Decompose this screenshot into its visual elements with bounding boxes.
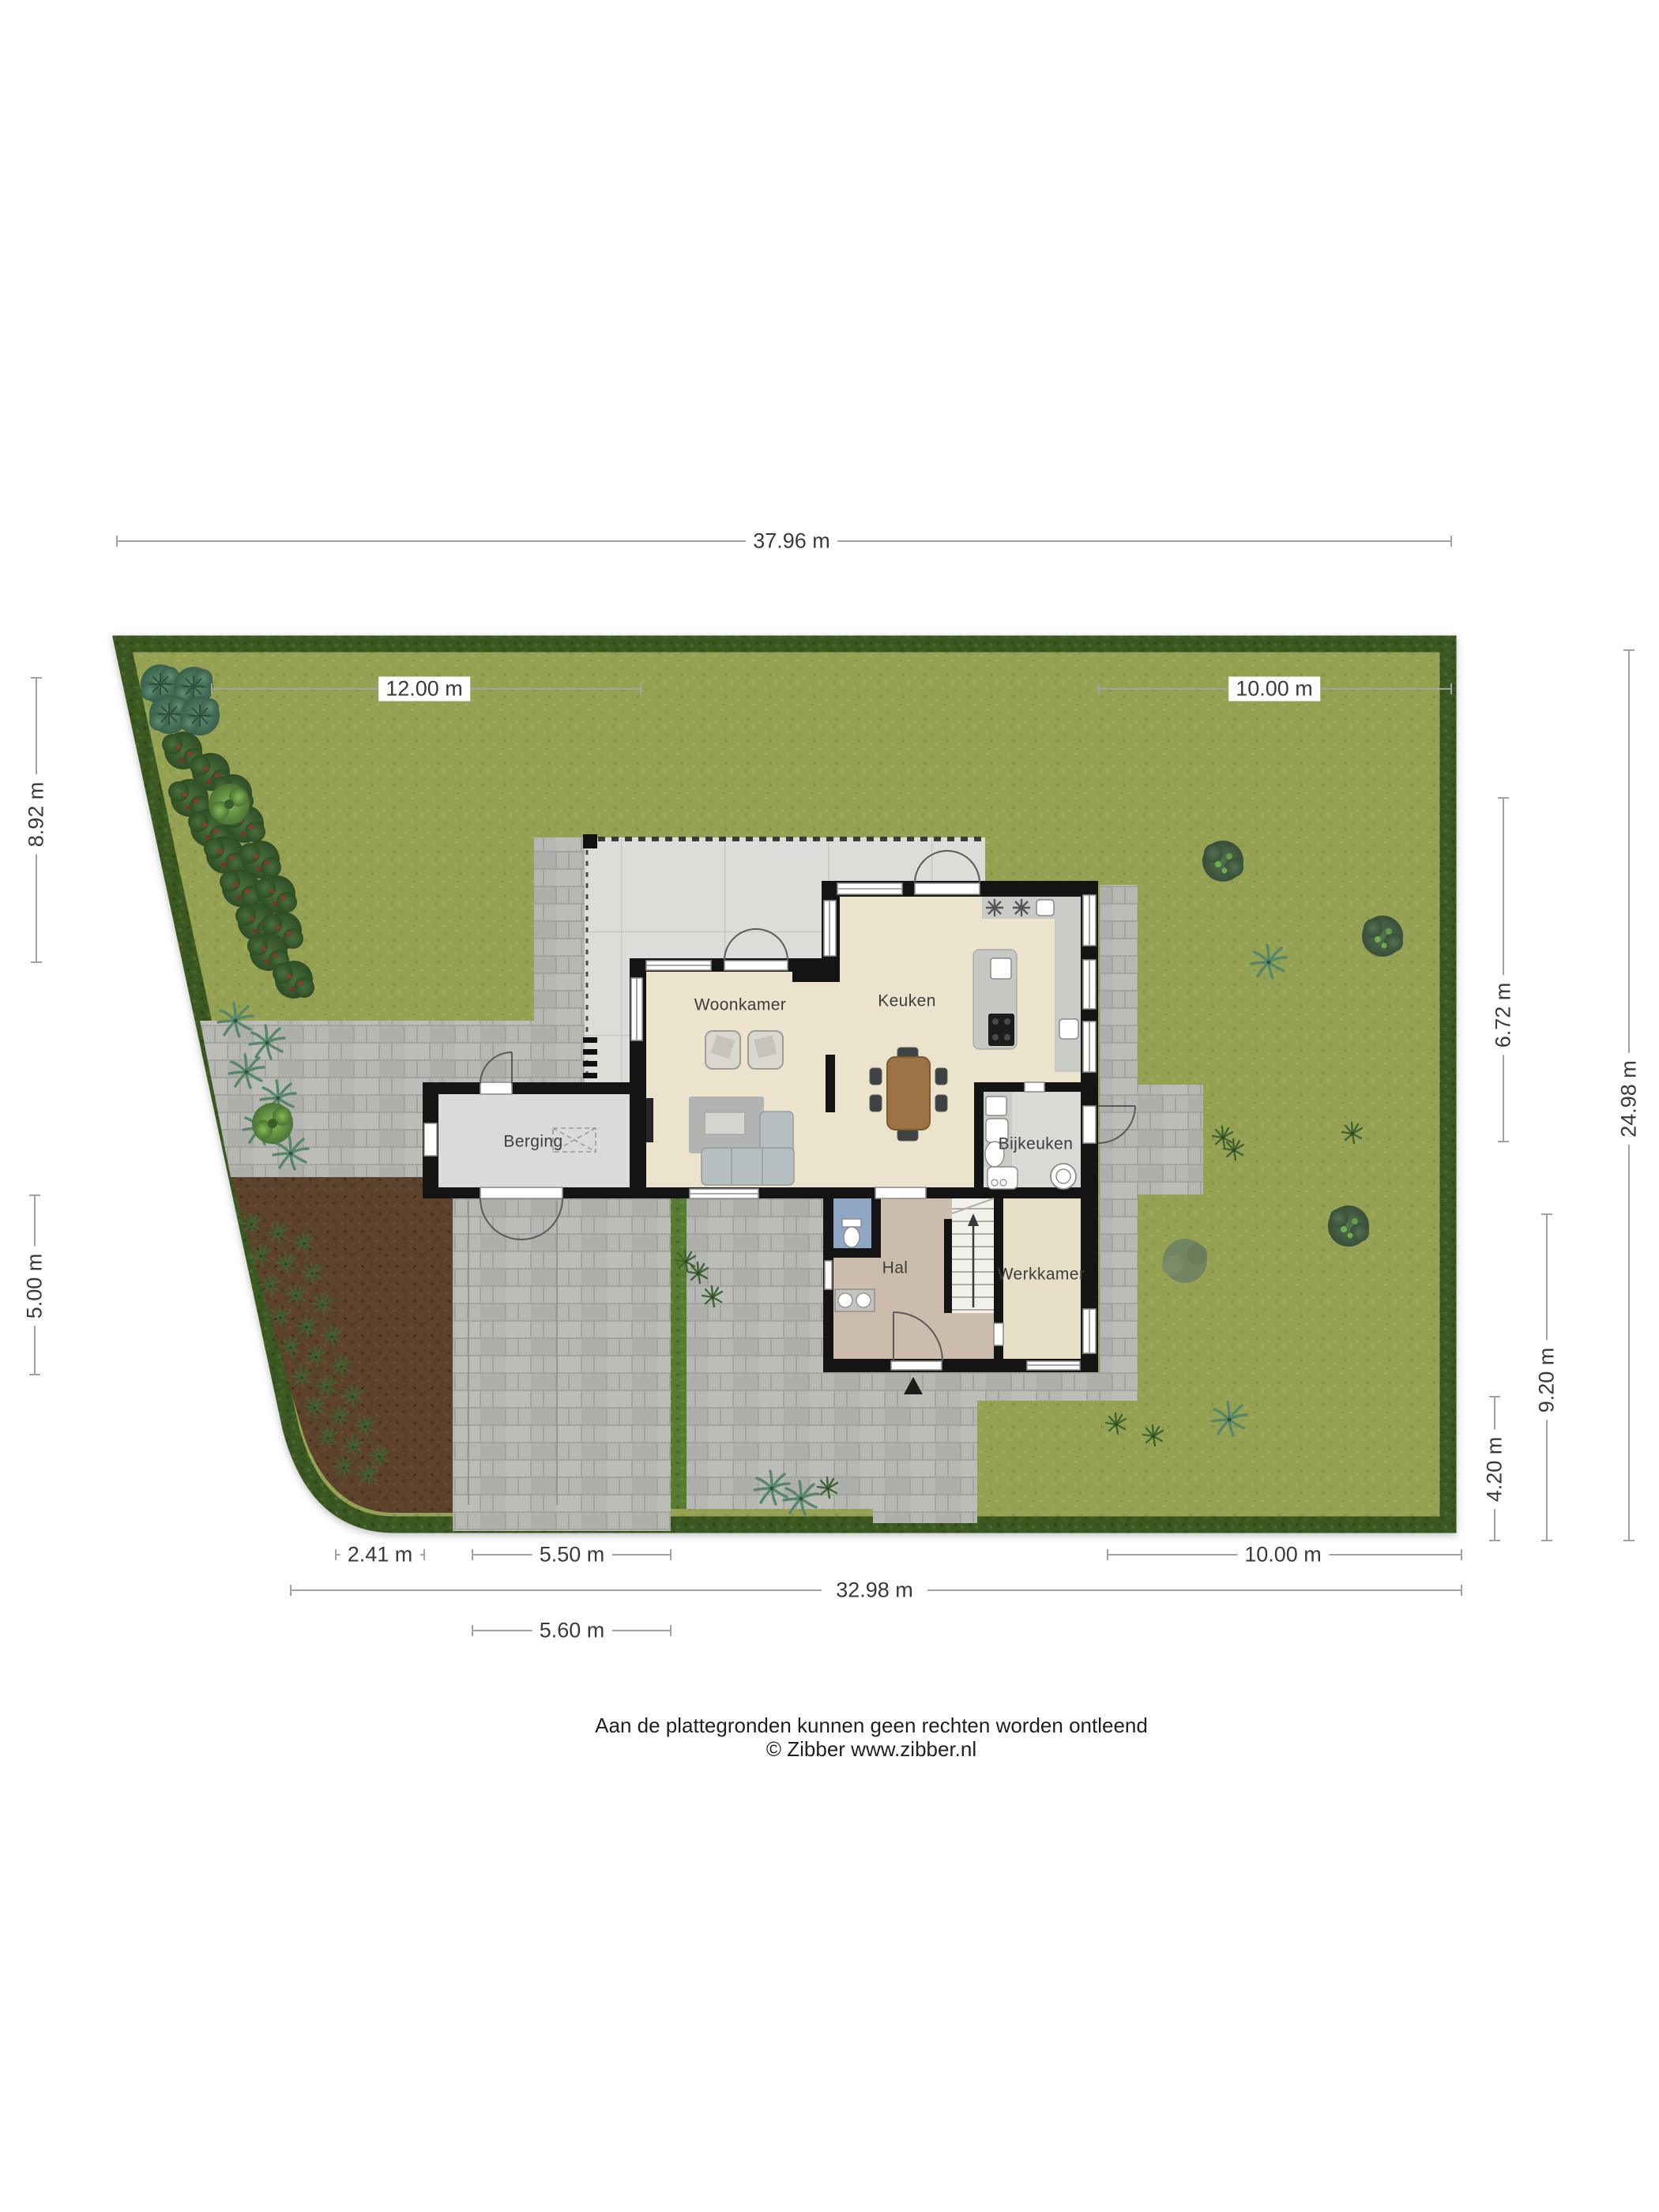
kitchen-island [973, 950, 1017, 1049]
footer-copyright: © Zibber www.zibber.nl [766, 1739, 976, 1759]
dim-bottom-3: 10.00 m [1237, 1543, 1329, 1567]
dim-bottom-2: 5.50 m [532, 1543, 612, 1567]
dim-bottom-4: 5.60 m [532, 1619, 612, 1643]
toilet-icon [844, 1227, 860, 1247]
dim-right-mid: 9.20 m [1535, 1341, 1559, 1420]
dim-top-right: 10.00 m [1228, 677, 1320, 702]
room-label-berging: Berging [503, 1134, 562, 1150]
site-plan-page: 37.96 m 12.00 m 10.00 m 8.92 m 5.00 m 6.… [0, 0, 1659, 2212]
dim-left-lower: 5.00 m [23, 1247, 47, 1326]
footer-disclaimer: Aan de plattegronden kunnen geen rechten… [595, 1715, 1148, 1736]
dim-right-total: 24.98 m [1617, 1053, 1642, 1145]
toilet-fixtures [842, 1219, 861, 1247]
dim-bottom-1: 2.41 m [340, 1543, 420, 1567]
room-label-hal: Hal [882, 1260, 908, 1277]
tree-icon [180, 696, 220, 735]
tv-icon [646, 1098, 653, 1142]
room-label-bijkeuken: Bijkeuken [999, 1136, 1074, 1153]
washer-icon [1051, 1164, 1076, 1189]
dim-right-upper: 6.72 m [1492, 976, 1516, 1055]
sofa [702, 1148, 794, 1185]
grass-strip [671, 1198, 687, 1509]
dim-right-lower: 4.20 m [1483, 1430, 1507, 1510]
shrub-icon [209, 784, 250, 825]
island-sink-icon [991, 958, 1011, 979]
dim-top-left: 12.00 m [378, 677, 470, 702]
driveway [453, 1198, 671, 1531]
cooktop-icon [988, 1014, 1014, 1046]
dim-left-upper: 8.92 m [24, 775, 49, 855]
room-label-werkkamer: Werkkamer [998, 1266, 1085, 1283]
dining-table [887, 1057, 930, 1130]
coffee-table [705, 1112, 745, 1134]
utility-sink-icon [986, 1097, 1006, 1115]
soil-bed [231, 1177, 453, 1513]
room-label-woonkamer: Woonkamer [694, 997, 786, 1014]
site-plan-canvas [0, 0, 1659, 2212]
dim-bottom-total: 32.98 m [829, 1578, 920, 1603]
shrub-icon [252, 1103, 293, 1144]
dim-top-total: 37.96 m [746, 529, 837, 554]
room-label-keuken: Keuken [878, 993, 936, 1010]
hal-cabinet [835, 1289, 875, 1311]
shrub-icon [1202, 841, 1243, 882]
sink-icon [1059, 1019, 1078, 1039]
appliance-icon [1036, 900, 1054, 916]
